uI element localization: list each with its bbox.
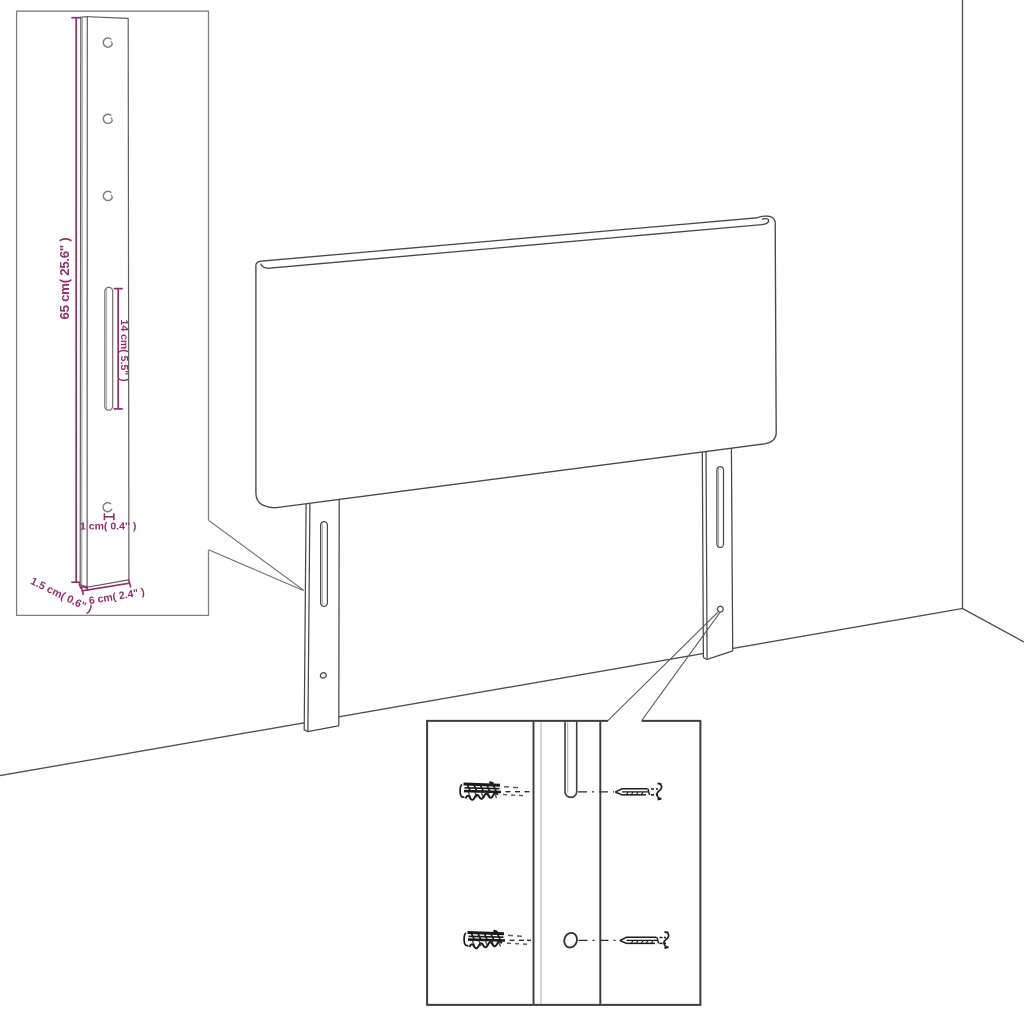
- svg-text:14 cm( 5.5" ): 14 cm( 5.5" ): [118, 320, 130, 382]
- svg-text:1.5 cm( 0.6" ): 1.5 cm( 0.6" ): [28, 575, 94, 615]
- svg-text:65 cm( 25.6" ): 65 cm( 25.6" ): [57, 238, 72, 320]
- svg-text:6 cm( 2.4" ): 6 cm( 2.4" ): [88, 586, 146, 607]
- svg-text:1 cm( 0.4" ): 1 cm( 0.4" ): [80, 521, 136, 533]
